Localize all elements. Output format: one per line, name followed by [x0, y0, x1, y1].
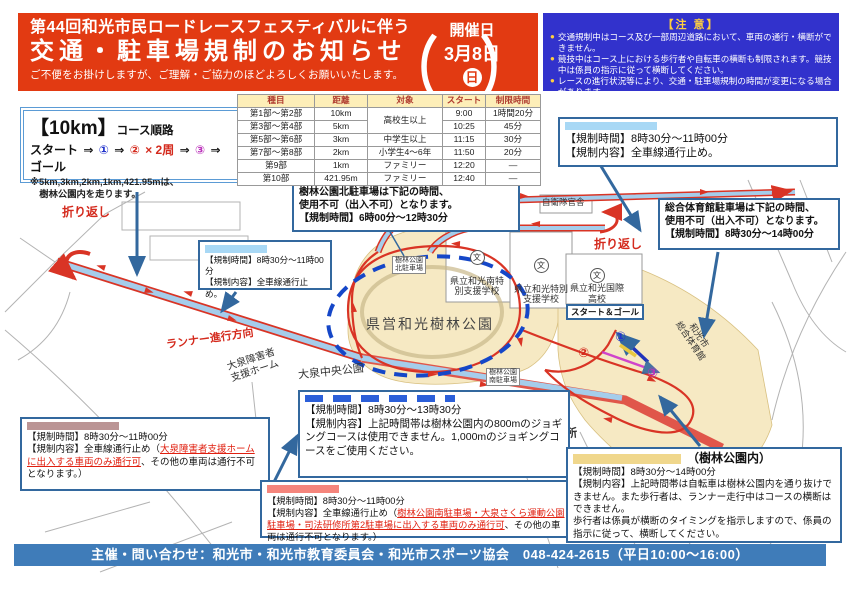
north-parking-label: 樹林公園 北駐車場	[392, 256, 426, 274]
bullet-icon: ●	[550, 54, 555, 76]
schedule-table: 種目 距離 対象 スタート 制限時間 第1部～第2部 10km 高校生以上 9:…	[237, 94, 541, 186]
jurin-park-label: 県営和光樹林公園	[366, 316, 494, 332]
course-order-box: 【10km】コース順路 スタート ⇒ ① ⇒ ② × 2周 ⇒ ③ ⇒ ゴール …	[20, 107, 246, 183]
turnaround-label-east: 折り返し	[594, 238, 642, 252]
legend-swatch-mauve	[27, 422, 119, 430]
caution-text-3: レースの進行状況等により、交通・駐車場規制の時間が変更になる場合があります。	[558, 76, 832, 98]
route-point-1: ①	[99, 143, 109, 157]
caution-heading: 【注 意】	[550, 16, 832, 32]
legend-swatch-salmon	[267, 485, 339, 493]
school-icon: 文	[590, 268, 605, 283]
school-tokubetsu-label: 文 県立和光特別 支援学校	[514, 248, 568, 304]
callout-south-road-closure: 【規制時間】8時30分～11時00分 【規制内容】全車線通行止め（樹林公園南駐車…	[260, 480, 572, 538]
route-point-2: ②	[130, 143, 140, 157]
callout-road-closure-northeast: 【規制時間】8時30分～11時00分 【規制内容】全車線通行止め。	[558, 117, 838, 167]
school-minami-label: 文 県立和光南特 別支援学校	[450, 240, 504, 296]
school-icon: 文	[470, 250, 485, 265]
caution-bullet-1: ● 交通規制中はコース及び一部周辺道路において、車両の通行・横断ができません。	[550, 32, 832, 54]
legend-swatch-dashed-blue	[305, 395, 455, 402]
col-start: スタート	[443, 95, 486, 108]
table-row: 第5部～第6部 3km 中学生以上 11:15 30分	[238, 134, 541, 147]
route-arrow: ⇒	[114, 143, 124, 157]
caution-box: 【注 意】 ● 交通規制中はコース及び一部周辺道路において、車両の通行・横断がで…	[543, 13, 839, 91]
course-note: ※5km,3km,2km,1km,421.95mは、 樹林公園内を走ります。	[30, 177, 236, 200]
legend-swatch-lightblue	[565, 122, 657, 130]
callout-shien-home-road: 【規制時間】8時30分～11時00分 【規制内容】全車線通行止め（大泉障害者支援…	[20, 417, 270, 491]
col-target: 対象	[368, 95, 443, 108]
course-title: 【10km】	[30, 118, 117, 139]
callout-inside-park: （樹林公園内） 【規制時間】8時30分～14時00分 【規制内容】上記時間帯は自…	[566, 447, 842, 543]
callout-gym-parking: 総合体育館駐車場は下記の時間、 使用不可（出入不可）となります。 【規制時間】8…	[658, 198, 840, 250]
day-of-week-badge: 日	[463, 68, 482, 87]
callout-inside-park-title: （樹林公園内）	[687, 451, 771, 467]
south-parking-label: 樹林公園 南駐車場	[486, 368, 520, 386]
col-limit: 制限時間	[486, 95, 541, 108]
start-goal-label: スタート＆ゴール	[566, 304, 644, 320]
jieitai-label: 自衛隊官舎	[542, 198, 585, 208]
route-arrow: ⇒	[211, 143, 221, 157]
route-arrow: ⇒	[180, 143, 190, 157]
turnaround-label-west: 折り返し	[62, 206, 110, 220]
caution-bullet-3: ● レースの進行状況等により、交通・駐車場規制の時間が変更になる場合があります。	[550, 76, 832, 98]
table-row: 第1部～第2部 10km 高校生以上 9:00 1時間20分	[238, 108, 541, 121]
route-start: スタート	[30, 143, 78, 157]
school-icon: 文	[534, 258, 549, 273]
school-kokusai-label: 文 県立和光国際 高校	[570, 258, 624, 304]
callout-jogging-course: 【規制時間】8時30分～13時30分 【規制内容】上記時間帯は樹林公園内の800…	[298, 390, 570, 478]
route-arrow: ⇒	[83, 143, 93, 157]
col-event: 種目	[238, 95, 315, 108]
bullet-icon: ●	[550, 76, 555, 98]
course-title-suffix: コース順路	[117, 125, 174, 137]
route-loop-count: × 2周	[145, 143, 174, 157]
legend-swatch-lightblue	[205, 245, 267, 253]
route-point-3: ③	[195, 143, 205, 157]
course-point-2: ②	[578, 346, 589, 361]
table-row: 第9部 1km ファミリー 12:20 ―	[238, 160, 541, 173]
bullet-icon: ●	[550, 32, 555, 54]
table-header-row: 種目 距離 対象 スタート 制限時間	[238, 95, 541, 108]
legend-swatch-yellow	[573, 454, 681, 464]
table-row: 第10部 421.95m ファミリー 12:40 ―	[238, 173, 541, 186]
course-route: スタート ⇒ ① ⇒ ② × 2周 ⇒ ③ ⇒ ゴール	[30, 141, 236, 175]
callout-north-parking: 樹林公園北駐車場は下記の時間、 使用不可（出入不可）となります。 【規制時間】6…	[292, 182, 520, 232]
col-distance: 距離	[315, 95, 368, 108]
footer-contact-bar: 主催・問い合わせ：和光市・和光市教育委員会・和光市スポーツ協会 048-424-…	[14, 544, 826, 566]
header-banner: 第44回和光市民ロードレースフェスティバルに伴う 交通・駐車場規制のお知らせ ご…	[18, 13, 538, 91]
course-point-1: ①	[615, 330, 626, 345]
caution-bullet-2: ● 競技中はコース上における歩行者や自転車の横断も制限されます。競技中は係員の指…	[550, 54, 832, 76]
table-row: 第7部～第8部 2km 小学生4～6年 11:50 20分	[238, 147, 541, 160]
caution-text-1: 交通規制中はコース及び一部周辺道路において、車両の通行・横断ができません。	[558, 32, 832, 54]
route-goal: ゴール	[30, 160, 66, 174]
callout-road-closure-west: 【規制時間】8時30分～11時00分 【規制内容】全車線通行止め。	[198, 240, 332, 290]
course-point-3: ③	[647, 366, 658, 381]
caution-text-2: 競技中はコース上における歩行者や自転車の横断も制限されます。競技中は係員の指示に…	[558, 54, 832, 76]
